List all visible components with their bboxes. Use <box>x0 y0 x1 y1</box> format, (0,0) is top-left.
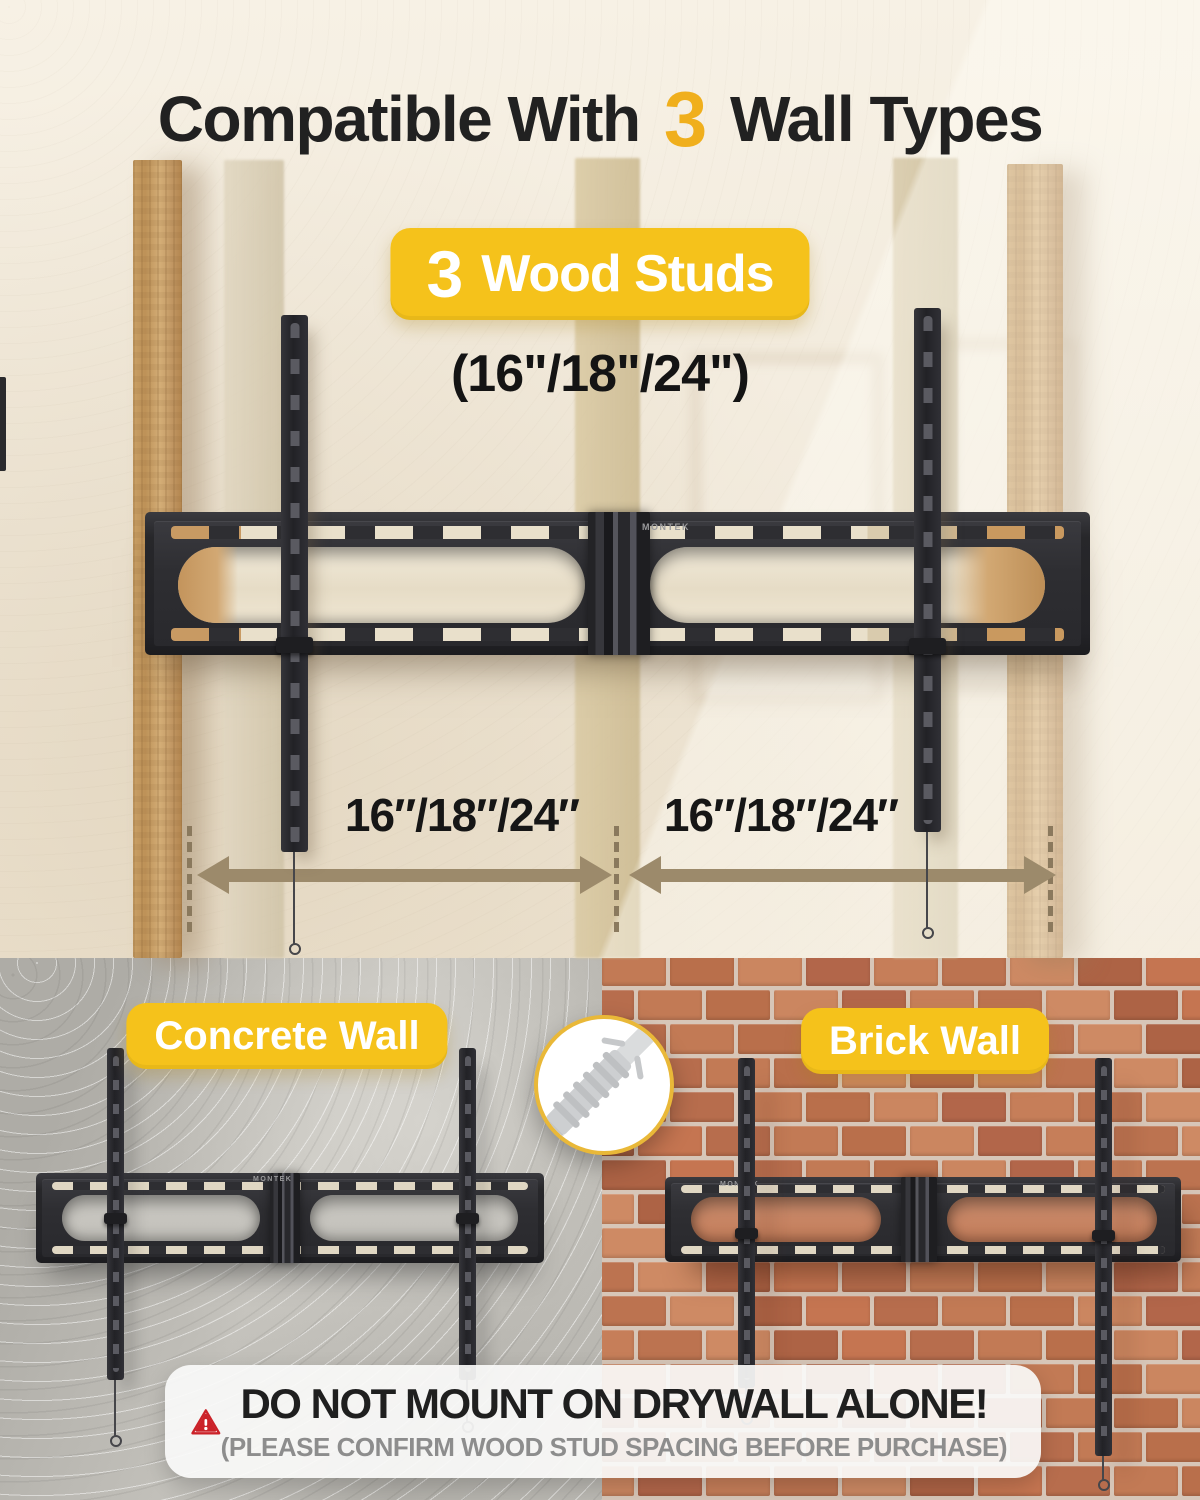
brick <box>874 958 938 986</box>
brick <box>602 1228 666 1258</box>
brick <box>638 990 702 1020</box>
anchor-callout-circle <box>534 1015 674 1155</box>
warning-title: DO NOT MOUNT ON DRYWALL ALONE! <box>221 1380 1007 1428</box>
vesa-bracket <box>281 315 308 852</box>
bracket-collar <box>104 1213 127 1224</box>
brick <box>602 1296 666 1326</box>
brick <box>1114 1466 1178 1496</box>
brick <box>942 1296 1006 1326</box>
brick <box>1114 990 1178 1020</box>
brick <box>1114 1398 1178 1428</box>
brick <box>874 1092 938 1122</box>
brand-logo: MONTEK <box>642 522 690 532</box>
brick <box>1182 1330 1200 1360</box>
brick <box>1146 1092 1200 1122</box>
pull-cord <box>1102 1456 1104 1480</box>
pull-cord <box>293 852 295 944</box>
brick <box>602 1262 634 1292</box>
brick <box>1182 1262 1200 1292</box>
brick <box>1078 958 1142 986</box>
brick <box>670 1024 734 1054</box>
plate-cutout <box>650 547 1045 623</box>
brick <box>910 1330 974 1360</box>
brick <box>1046 990 1110 1020</box>
brick <box>1146 958 1200 986</box>
bracket-collar <box>456 1213 479 1224</box>
brick <box>602 958 666 986</box>
arrow-shaft <box>223 869 586 882</box>
brick <box>1078 1024 1142 1054</box>
plate-cutout <box>947 1197 1157 1242</box>
spacing-arrow-left <box>197 856 612 894</box>
brick <box>942 958 1006 986</box>
plate-cutout <box>310 1195 518 1241</box>
title-number: 3 <box>664 75 706 163</box>
warning-subtitle: (PLEASE CONFIRM WOOD STUD SPACING BEFORE… <box>221 1432 1007 1463</box>
bracket-collar <box>735 1228 758 1239</box>
brick <box>1146 1364 1200 1394</box>
title-suffix: Wall Types <box>714 83 1042 155</box>
brick <box>774 1330 838 1360</box>
plate-center-joint <box>588 512 650 655</box>
wall-anchor-icon <box>538 1019 662 1143</box>
brick <box>1114 1126 1178 1156</box>
brick <box>1182 1194 1200 1224</box>
brick <box>806 1296 870 1326</box>
brick <box>1010 958 1074 986</box>
brick <box>670 1296 734 1326</box>
brick <box>1146 1024 1200 1054</box>
plate-cutout <box>691 1197 881 1242</box>
product-infographic: Compatible With 3 Wall Types 3 Wood Stud… <box>0 0 1200 1500</box>
plate-center-joint <box>901 1177 937 1262</box>
brick <box>1010 1092 1074 1122</box>
brick <box>806 958 870 986</box>
brick <box>602 1330 634 1360</box>
stud-sizes-caption: (16"/18"/24") <box>0 344 1200 404</box>
brick <box>806 1092 870 1122</box>
arrowhead-right-icon <box>580 856 612 894</box>
brick <box>774 1126 838 1156</box>
brick <box>910 1262 974 1292</box>
brick <box>910 1126 974 1156</box>
brick <box>1182 1126 1200 1156</box>
stud-centerline-dash <box>614 826 619 932</box>
brick <box>638 1330 702 1360</box>
brick <box>738 1024 802 1054</box>
stud-spacing-label-left: 16″/18″/24″ <box>345 788 579 842</box>
stud-centerline-dash <box>187 826 192 932</box>
brick <box>774 1262 838 1292</box>
brick <box>1010 1296 1074 1326</box>
brick <box>602 1194 634 1224</box>
concrete-wall-badge: Concrete Wall <box>126 1003 447 1069</box>
plate-cutout <box>178 547 585 623</box>
brick <box>1182 1058 1200 1088</box>
brick <box>738 958 802 986</box>
brick <box>638 1262 702 1292</box>
pull-cord <box>114 1380 116 1436</box>
warning-banner: DO NOT MOUNT ON DRYWALL ALONE! (PLEASE C… <box>165 1365 1041 1478</box>
vesa-bracket <box>738 1058 755 1388</box>
bracket-collar <box>276 637 313 653</box>
brand-logo: MONTEK <box>253 1176 292 1183</box>
wood-studs-badge-label: Wood Studs <box>481 244 773 304</box>
bracket-collar <box>909 638 946 654</box>
title-prefix: Compatible With <box>158 83 656 155</box>
page-title: Compatible With 3 Wall Types <box>0 74 1200 165</box>
wood-studs-badge-number: 3 <box>426 236 463 312</box>
spacing-arrow-right <box>629 856 1056 894</box>
brick <box>670 1092 734 1122</box>
stud-spacing-label-right: 16″/18″/24″ <box>664 788 898 842</box>
brick <box>874 1296 938 1326</box>
brick <box>1182 1398 1200 1428</box>
warning-triangle-icon <box>191 1380 221 1464</box>
bracket-collar <box>1092 1230 1115 1241</box>
arrowhead-right-icon <box>1024 856 1056 894</box>
plate-cutout <box>62 1195 260 1241</box>
brick <box>842 1126 906 1156</box>
concrete-wall-badge-label: Concrete Wall <box>154 1014 419 1059</box>
brick <box>706 990 770 1020</box>
brick <box>1114 1262 1178 1292</box>
plate-center-joint <box>270 1173 300 1263</box>
wood-studs-badge: 3 Wood Studs <box>390 228 809 320</box>
brick <box>670 958 734 986</box>
vesa-bracket <box>107 1048 124 1380</box>
brick <box>1114 1058 1178 1088</box>
brick <box>978 1262 1042 1292</box>
brick <box>842 1262 906 1292</box>
vesa-bracket <box>914 308 941 832</box>
vesa-bracket <box>459 1048 476 1380</box>
brick-wall-badge: Brick Wall <box>801 1008 1049 1074</box>
brick <box>842 1330 906 1360</box>
pull-cord <box>926 832 928 928</box>
brick <box>978 1330 1042 1360</box>
vesa-bracket <box>1095 1058 1112 1456</box>
brick <box>1146 1432 1200 1462</box>
brick <box>1114 1330 1178 1360</box>
arrow-shaft <box>655 869 1030 882</box>
brick <box>602 1160 666 1190</box>
brick <box>1146 1296 1200 1326</box>
brick <box>978 1126 1042 1156</box>
brick <box>942 1092 1006 1122</box>
brick <box>1182 1466 1200 1496</box>
brick-wall-badge-label: Brick Wall <box>829 1019 1021 1064</box>
brick <box>1182 990 1200 1020</box>
